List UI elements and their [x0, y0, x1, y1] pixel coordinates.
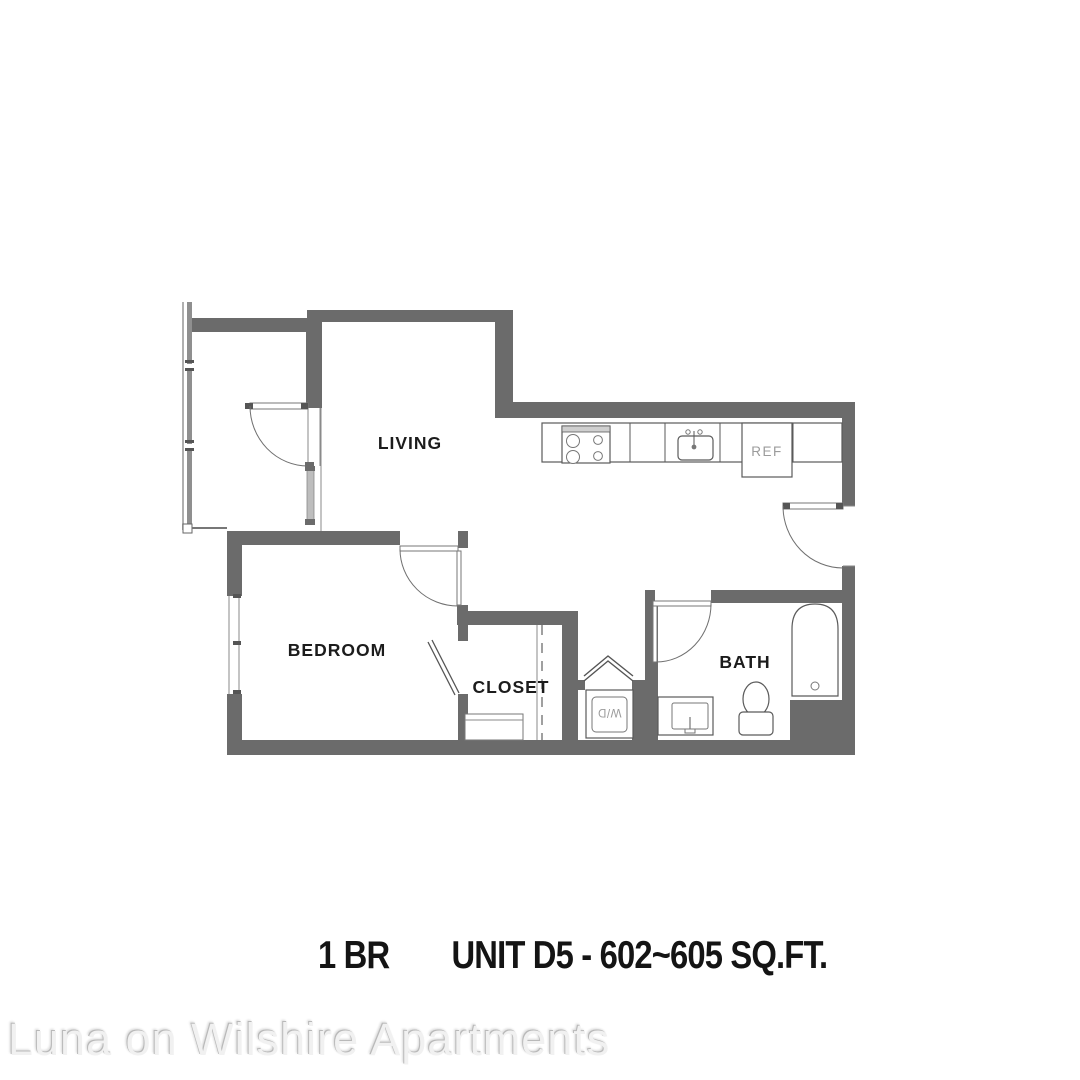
floor-plan-page: REF: [0, 0, 1080, 1080]
room-label-closet: CLOSET: [473, 677, 550, 697]
watermark: Luna on Wilshire Apartments: [8, 1014, 610, 1066]
bifold-doors: [584, 656, 633, 681]
stove: [562, 426, 610, 464]
closet-shelf: [465, 714, 523, 740]
room-label-bedroom: BEDROOM: [288, 640, 386, 660]
floor-plan-drawing: REF: [0, 0, 1080, 900]
washer-dryer-label: W/D: [598, 706, 622, 718]
plan-title: 1 BR UNIT D5 - 602~605 SQ.FT.: [318, 934, 827, 978]
toilet: [739, 682, 773, 735]
vanity-sink: [658, 697, 713, 735]
refrigerator: REF: [742, 423, 792, 477]
refrigerator-label: REF: [751, 444, 783, 459]
entry-door: [783, 503, 855, 568]
glass-panel: [305, 408, 321, 531]
room-label-living: LIVING: [378, 433, 442, 453]
bedroom-count: 1 BR: [318, 934, 389, 978]
room-label-bath: BATH: [719, 652, 770, 672]
bedroom-door: [400, 546, 461, 606]
balcony-door: [245, 403, 320, 469]
unit-info: UNIT D5 - 602~605 SQ.FT.: [451, 934, 827, 978]
bedroom-window: [226, 594, 243, 694]
bath-door: [653, 601, 711, 662]
balcony-window-wall: [182, 302, 227, 533]
closet-door: [428, 640, 459, 695]
bathtub: [792, 604, 838, 696]
washer-dryer: W/D: [586, 690, 633, 738]
